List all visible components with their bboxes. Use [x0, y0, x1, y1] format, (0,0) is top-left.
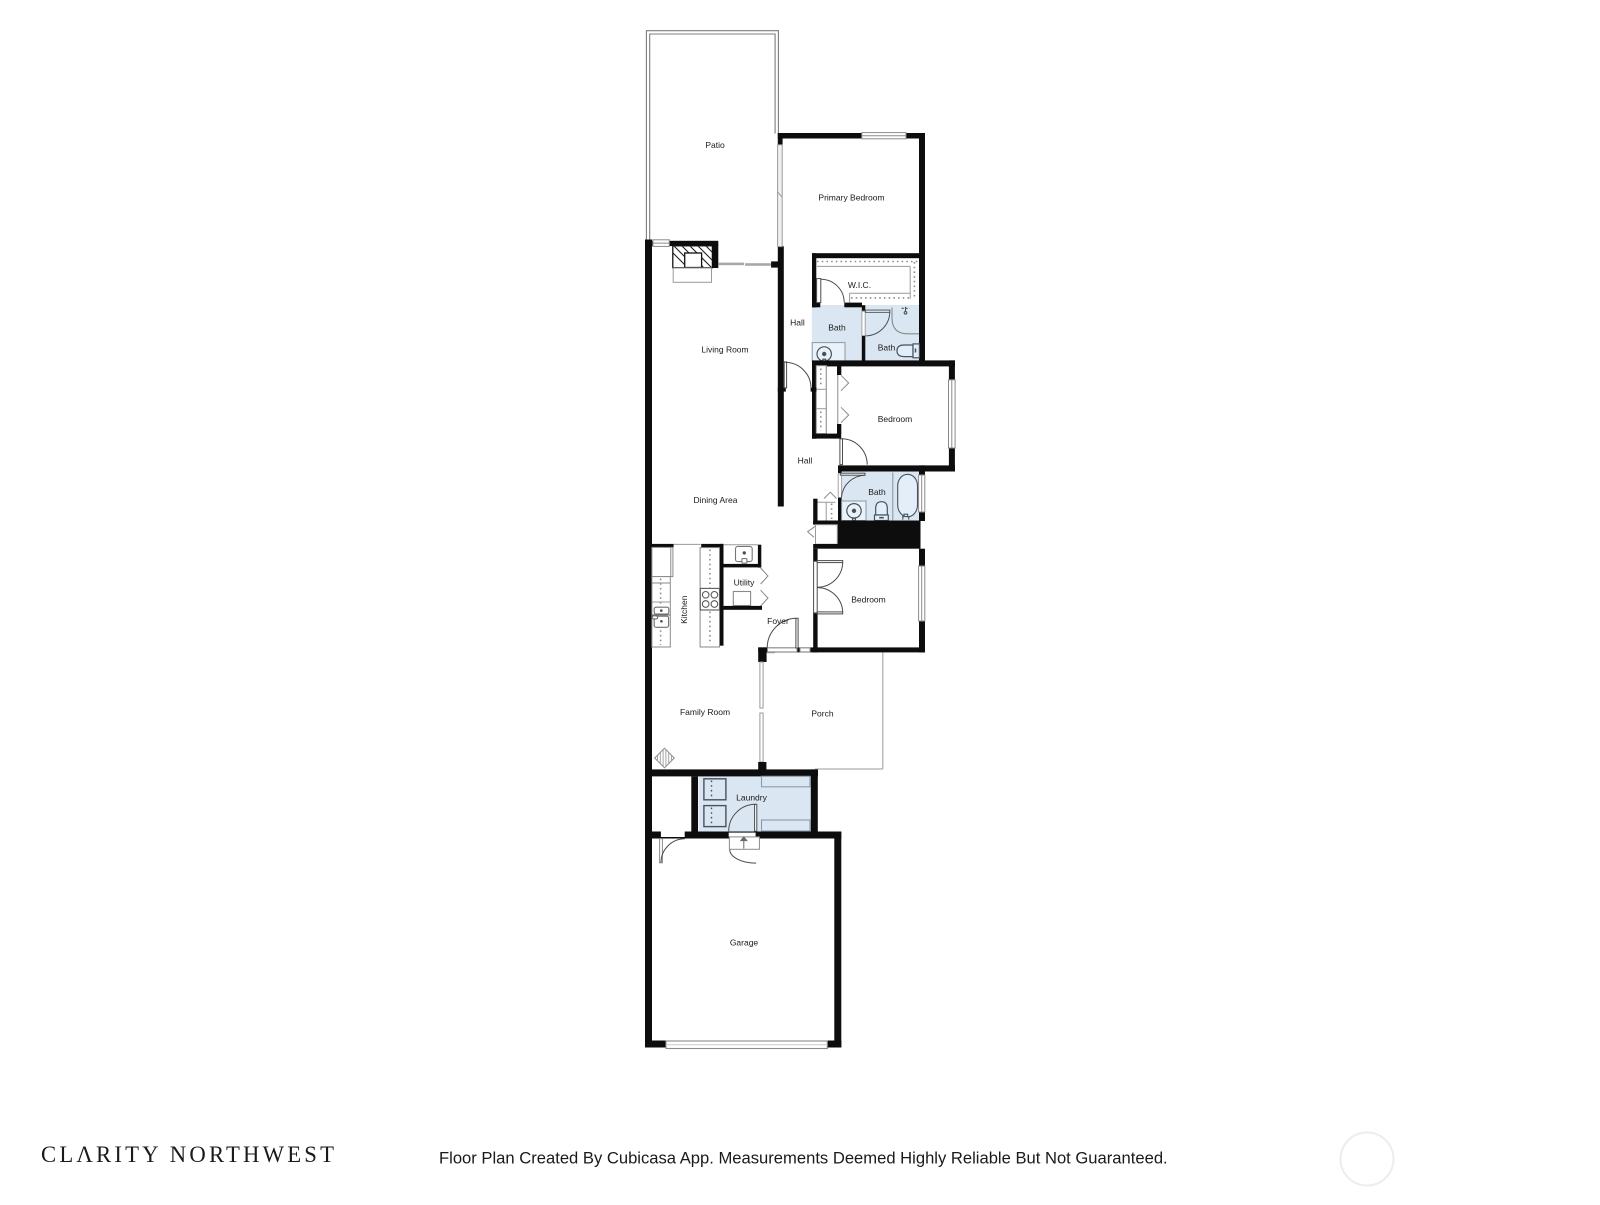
svg-text:Utility: Utility — [734, 578, 756, 588]
svg-text:Primary Bedroom: Primary Bedroom — [818, 193, 884, 203]
svg-text:Kitchen: Kitchen — [679, 595, 689, 624]
svg-text:Living Room: Living Room — [701, 345, 748, 355]
svg-text:Hall: Hall — [790, 318, 805, 328]
svg-text:Hall: Hall — [798, 455, 813, 465]
svg-text:CLΛRITY NORTHWEST: CLΛRITY NORTHWEST — [41, 1142, 337, 1167]
svg-text:Floor Plan Created By Cubicasa: Floor Plan Created By Cubicasa App. Meas… — [439, 1149, 1168, 1168]
svg-text:Porch: Porch — [811, 708, 833, 718]
svg-text:Bath: Bath — [878, 343, 896, 353]
svg-text:Foyer: Foyer — [767, 616, 789, 626]
svg-text:Bedroom: Bedroom — [851, 595, 886, 605]
svg-text:Bath: Bath — [828, 322, 846, 332]
svg-text:W.I.C.: W.I.C. — [848, 280, 871, 290]
svg-text:Bedroom: Bedroom — [878, 414, 913, 424]
svg-text:Patio: Patio — [705, 140, 725, 150]
svg-text:Garage: Garage — [730, 938, 759, 948]
svg-text:Laundry: Laundry — [736, 792, 767, 802]
svg-text:Bath: Bath — [868, 487, 886, 497]
svg-text:Family Room: Family Room — [680, 707, 730, 717]
svg-text:Dining Area: Dining Area — [694, 495, 738, 505]
